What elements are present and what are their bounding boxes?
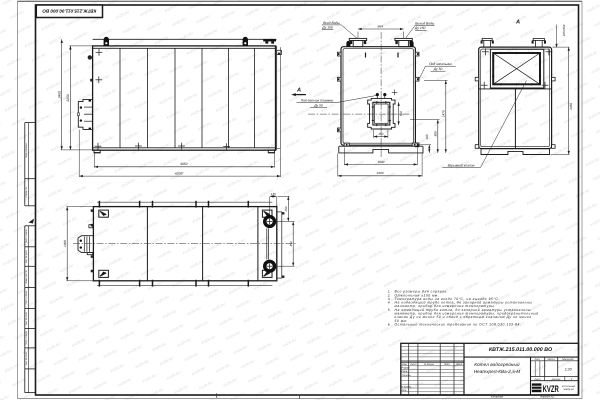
svg-text:Ду 150: Ду 150: [321, 26, 333, 30]
svg-text:Выход Воды: Выход Воды: [415, 21, 435, 25]
svg-text:4.: 4.: [388, 301, 391, 305]
svg-text:254: 254: [284, 206, 288, 212]
svg-text:Дата: Дата: [455, 363, 463, 366]
svg-text:150: 150: [378, 132, 383, 136]
svg-text:Подп.: Подп.: [444, 363, 451, 366]
svg-text:Остальные технические требован: Остальные технические требования по ОСТ …: [395, 323, 522, 327]
svg-text:502: 502: [399, 111, 403, 116]
svg-text:А: А: [296, 88, 301, 94]
svg-text:800: 800: [433, 131, 437, 136]
svg-text:1540: 1540: [377, 160, 384, 164]
svg-text:Лист: Лист: [409, 363, 416, 366]
svg-text:1900: 1900: [63, 240, 67, 247]
svg-text:Под датчик пламени: Под датчик пламени: [301, 98, 334, 102]
svg-text:Подп. и дата: Подп. и дата: [25, 331, 28, 345]
svg-text:5.: 5.: [388, 308, 391, 312]
svg-text:Ду 50: Ду 50: [433, 67, 443, 71]
svg-text:Вход Воды: Вход Воды: [323, 21, 340, 25]
svg-text:Формат А2: Формат А2: [540, 396, 554, 399]
svg-text:4200*: 4200*: [175, 172, 184, 176]
svg-text:195: 195: [425, 134, 429, 139]
svg-text:2455: 2455: [569, 103, 573, 111]
svg-text:Взам. инв. №: Взам. инв. №: [25, 269, 28, 283]
svg-text:1470: 1470: [441, 110, 445, 117]
svg-text:А: А: [515, 20, 520, 26]
svg-text:2400: 2400: [58, 91, 62, 100]
svg-text:Взрывной клапан: Взрывной клапан: [448, 163, 475, 167]
svg-text:Ду 150: Ду 150: [414, 26, 426, 30]
svg-text:Т.контр.: Т.контр.: [402, 374, 412, 377]
svg-text:Н.контр.: Н.контр.: [402, 385, 412, 388]
svg-text:Котел водогрейный: Котел водогрейный: [474, 362, 520, 367]
svg-text:Инв. № дубл.: Инв. № дубл.: [25, 249, 28, 263]
svg-text:Масса: Масса: [547, 358, 555, 361]
svg-text:№ докум.: № докум.: [424, 363, 435, 366]
svg-text:Под запальник: Под запальник: [429, 62, 452, 66]
svg-text:KVZR: KVZR: [543, 383, 559, 394]
svg-text:КВТЖ.215.011.00.000 ВО: КВТЖ.215.011.00.000 ВО: [42, 9, 96, 14]
svg-text:Лит.: Лит.: [533, 358, 540, 361]
svg-text:185×954: 185×954: [562, 24, 566, 36]
svg-text:Утв.: Утв.: [402, 389, 408, 392]
svg-text:1:20: 1:20: [565, 368, 572, 372]
svg-text:Подп. и дата: Подп. и дата: [25, 229, 28, 243]
svg-text:954: 954: [378, 24, 384, 28]
svg-text:Копировал: Копировал: [491, 396, 504, 399]
svg-text:Перв. примен.: Перв. примен.: [25, 143, 28, 159]
svg-text:6.: 6.: [388, 323, 391, 327]
svg-text:ЗАВОД РФ: ЗАВОД РФ: [563, 388, 574, 391]
svg-text:135: 135: [271, 192, 276, 196]
svg-text:1900: 1900: [377, 171, 384, 175]
svg-text:КОТЕЛЬНЫЙ: КОТЕЛЬНЫЙ: [562, 385, 576, 388]
svg-text:Инв. № подл.: Инв. № подл.: [25, 351, 28, 365]
svg-text:клапан Ду не менее 50 и обвод: клапан Ду не менее 50 и обвод с обратным…: [395, 315, 532, 319]
svg-text:2250: 2250: [66, 94, 70, 103]
svg-text:Heatexpert-КВа-2,5-М: Heatexpert-КВа-2,5-М: [474, 369, 521, 374]
svg-text:Подп. и дата: Подп. и дата: [25, 290, 28, 304]
svg-text:Ду 50: Ду 50: [313, 104, 323, 108]
svg-text:Пров.: Пров.: [402, 370, 409, 373]
svg-text:Масштаб: Масштаб: [562, 358, 574, 361]
svg-text:Изм.: Изм.: [402, 363, 407, 366]
svg-text:КВТЖ.215.011.00.000 ВО: КВТЖ.215.011.00.000 ВО: [489, 347, 553, 353]
svg-text:854: 854: [289, 241, 293, 246]
svg-text:3850: 3850: [180, 162, 188, 166]
svg-text:Справ. №: Справ. №: [25, 186, 28, 197]
svg-text:Инв. № подл.: Инв. № подл.: [25, 311, 28, 325]
